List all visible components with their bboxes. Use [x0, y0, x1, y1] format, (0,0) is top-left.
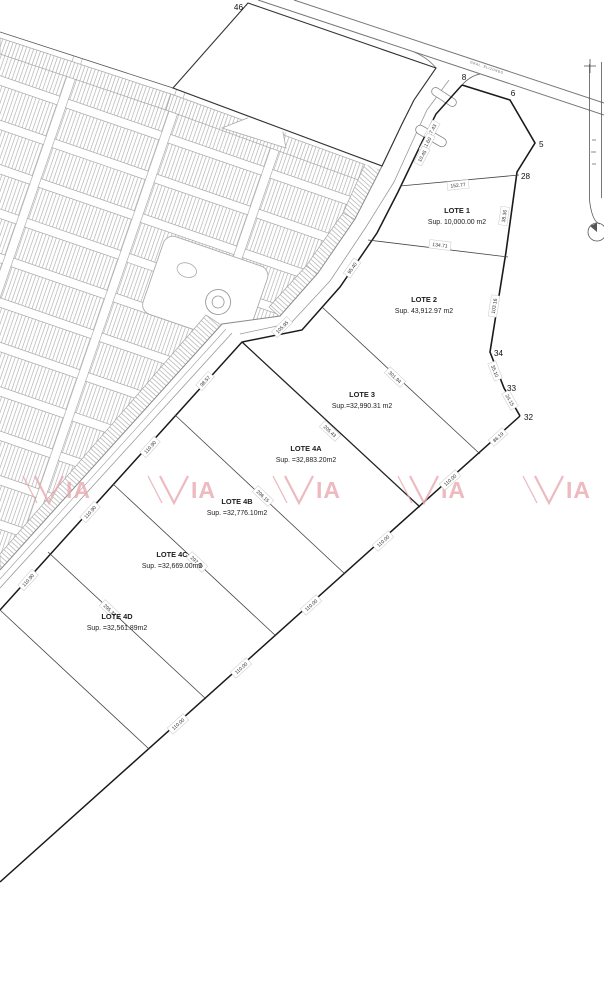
svg-text:IA: IA: [191, 477, 216, 503]
dimension-label: 110.90: [80, 501, 101, 523]
lot-area-label: Sup. 10,000.00 m2: [428, 219, 486, 226]
dimension-label: 98.57: [196, 371, 215, 390]
vertex-label: 32: [524, 413, 534, 422]
vertex-label: 28: [521, 172, 531, 181]
dimension-label: 86.19: [488, 428, 507, 447]
watermark: IA: [273, 476, 341, 503]
svg-text:103.16: 103.16: [491, 298, 499, 314]
dimension-label: 103.16: [488, 295, 500, 317]
road-name-layer: GRAL. ELIZONDO: [470, 60, 505, 75]
lot-name-label: LOTE 4D: [101, 612, 133, 621]
lot-area-label: Sup. =32,883.20m2: [276, 457, 337, 464]
highway: [258, 0, 604, 115]
lot-area-label: Sup. =32,669.00m2: [142, 563, 203, 570]
dimension-label: 110.00: [300, 595, 322, 616]
vertex-label: 46: [234, 3, 244, 12]
site-plan-canvas: GRAL. ELIZONDO: [0, 0, 604, 999]
dimension-label: 110.90: [18, 569, 39, 591]
vertex-label: 33: [507, 384, 517, 393]
lot-name-label: LOTE 4A: [290, 444, 322, 453]
watermark: IA: [523, 476, 591, 503]
site-plan-page: GRAL. ELIZONDO: [0, 0, 604, 999]
lot-name-label: LOTE 2: [411, 295, 437, 304]
dimension-label: 95.40: [343, 258, 360, 278]
lot-name-label: LOTE 4B: [221, 497, 252, 506]
dimension-label: 10.45: [414, 146, 430, 166]
vertex-label: 6: [511, 89, 516, 98]
road-name-label: GRAL. ELIZONDO: [470, 60, 505, 75]
dimension-label: 110.00: [372, 531, 394, 552]
vertex-label: 8: [462, 73, 467, 82]
dimension-label: 38.36: [499, 206, 510, 225]
svg-text:205.43: 205.43: [322, 424, 337, 439]
lot-area-label: Sup.=32,990.31 m2: [332, 403, 393, 410]
dimension-label: 35.10: [488, 361, 502, 381]
dimension-label: 301.94: [384, 367, 405, 388]
lot-area-label: Sup. =32,561.89m2: [87, 625, 148, 632]
lot-name-label: LOTE 3: [349, 390, 375, 399]
svg-text:IA: IA: [66, 477, 91, 503]
dimension-label: 110.90: [140, 436, 161, 458]
dimension-label: 110.00: [230, 658, 252, 679]
svg-text:296.15: 296.15: [255, 489, 270, 504]
dimension-label: 110.00: [167, 714, 189, 735]
lot-name-label: LOTE 4C: [156, 550, 188, 559]
svg-text:301.94: 301.94: [387, 370, 402, 385]
lot-name-label: LOTE 1: [444, 206, 470, 215]
svg-text:IA: IA: [316, 477, 341, 503]
subdivision-blocks: [0, 21, 429, 675]
watermark: IA: [148, 476, 216, 503]
vertex-label: 5: [539, 140, 544, 149]
north-arrow-partial: [584, 59, 604, 241]
vertex-label: 34: [494, 349, 504, 358]
dimension-label: 134.71: [429, 240, 451, 251]
lot-area-label: Sup. 43,912.97 m2: [395, 308, 453, 315]
svg-text:IA: IA: [566, 477, 591, 503]
lot-area-label: Sup. =32,776.10m2: [207, 510, 268, 517]
dimension-label: 296.15: [252, 486, 273, 507]
